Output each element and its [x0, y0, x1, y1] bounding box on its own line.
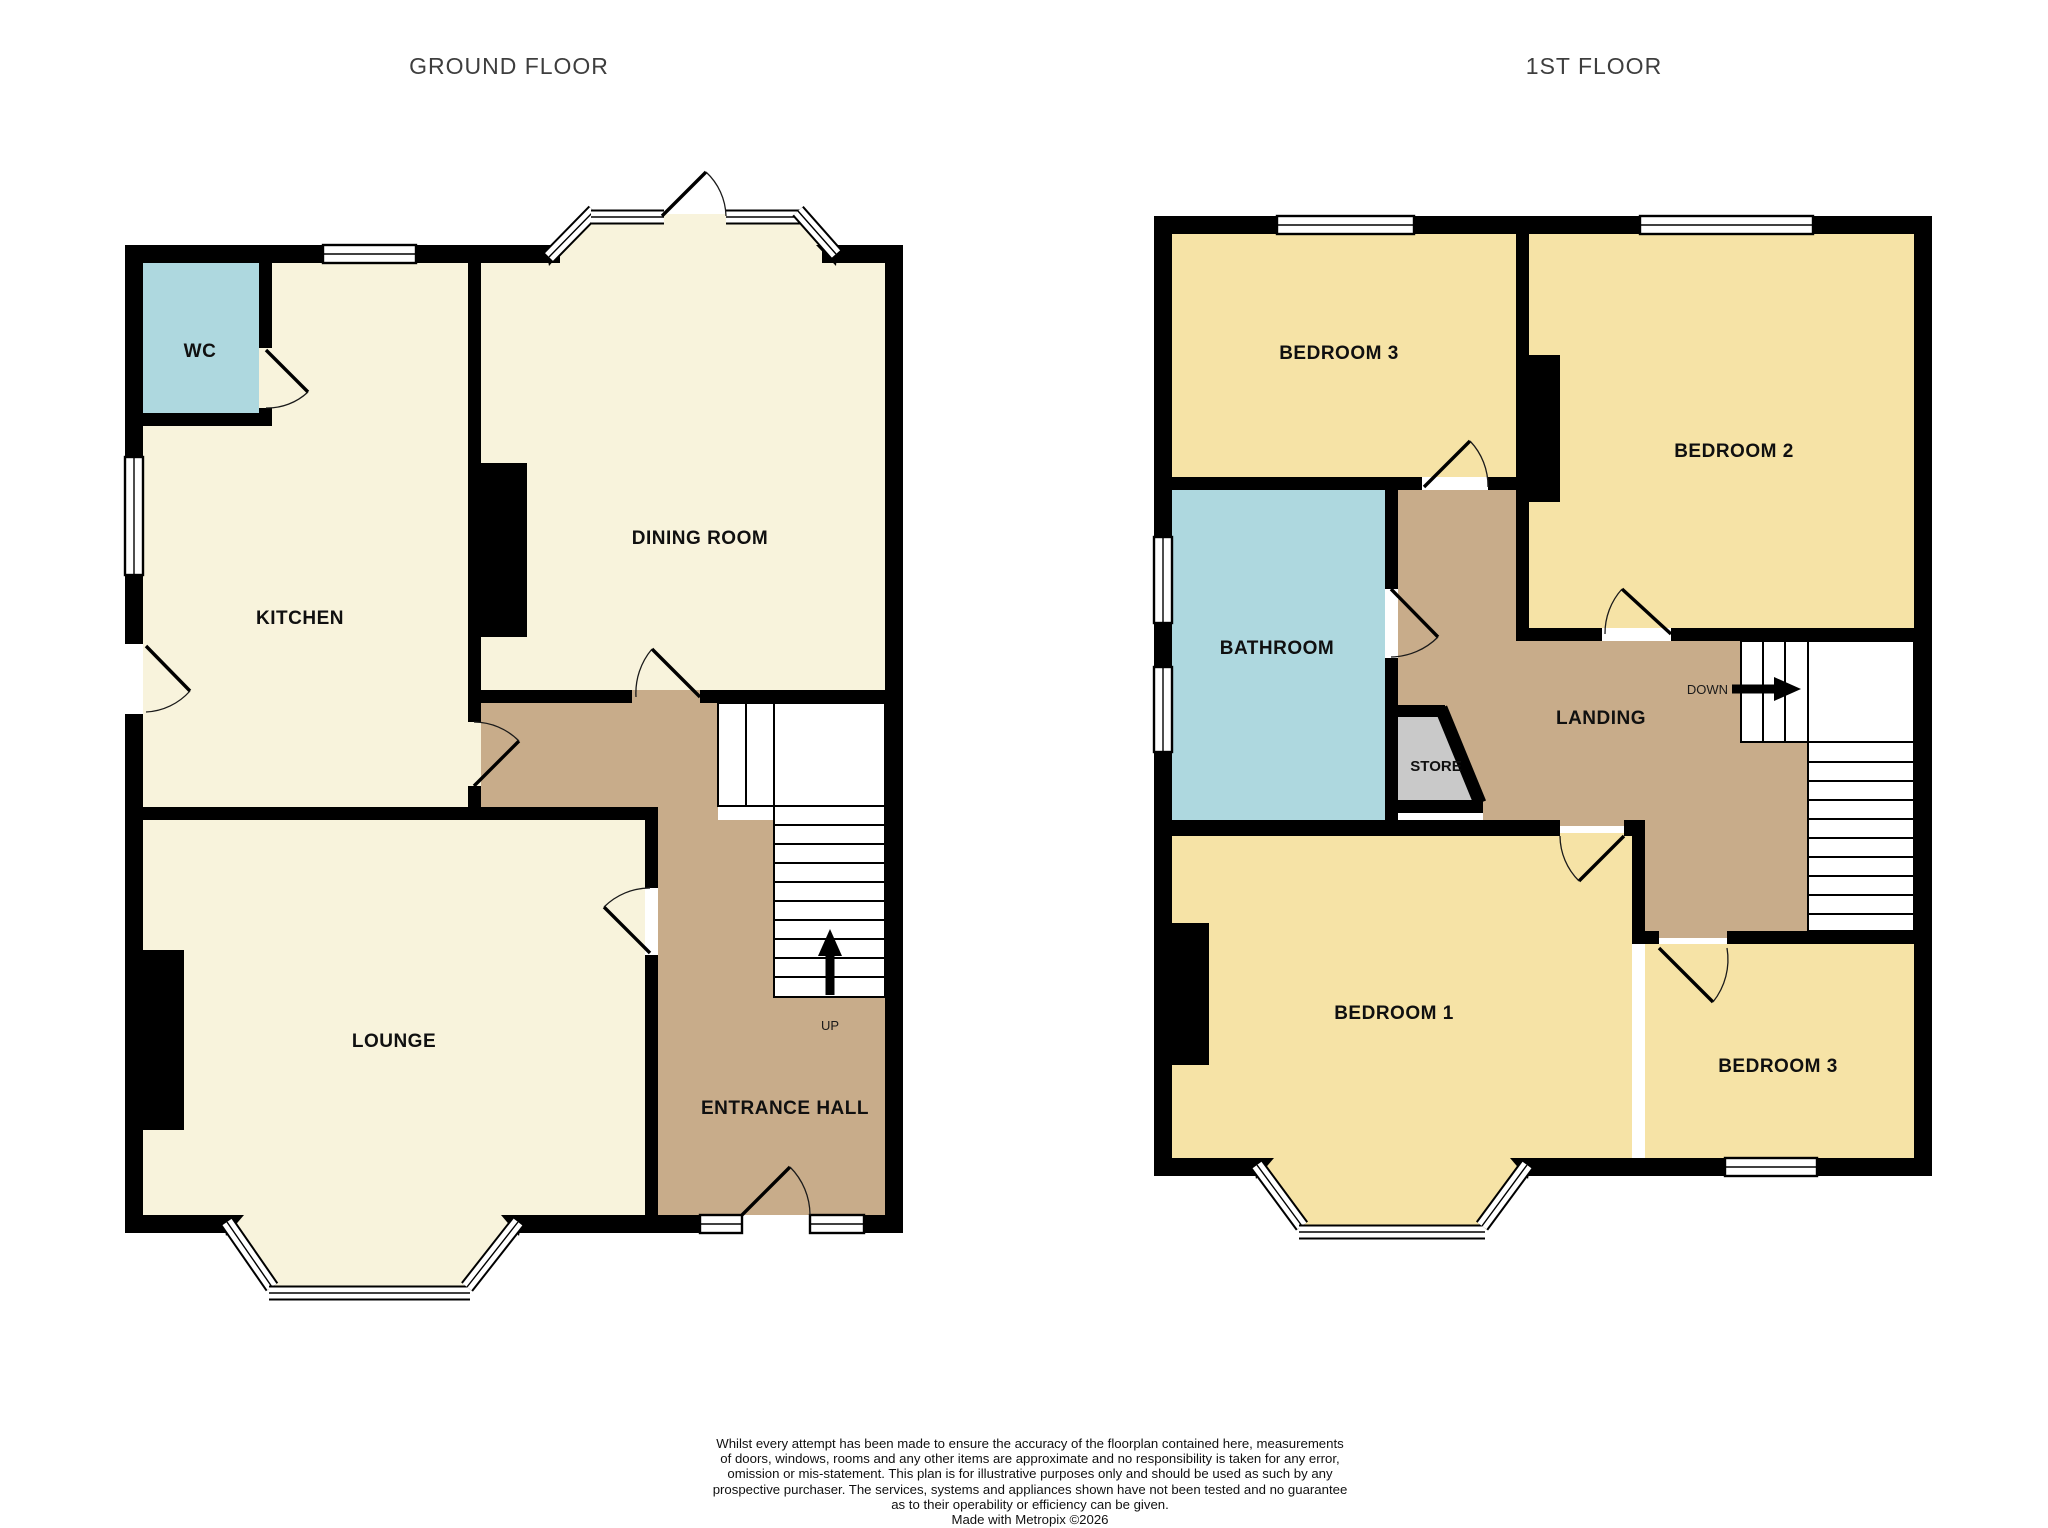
bathroom-window-lower: [1154, 667, 1172, 752]
ground-floor-plan: WC KITCHEN DINING ROOM LOUNGE ENTRANCE H…: [125, 172, 903, 1293]
stairwell-void: [1808, 641, 1914, 742]
kitchen-side-window: [125, 457, 143, 575]
first-floor-title: 1ST FLOOR: [1526, 53, 1662, 79]
dining-room-label: DINING ROOM: [632, 528, 768, 549]
hall-corridor-floor: [481, 690, 718, 820]
bathroom-label: BATHROOM: [1220, 638, 1334, 659]
landing-label: LANDING: [1556, 708, 1646, 729]
bedroom3-bottom-label: BEDROOM 3: [1718, 1056, 1838, 1077]
kitchen-top-window: [323, 245, 416, 263]
bedroom3-top-window: [1277, 216, 1414, 234]
made-with-metropix: Made with Metropix ©2026: [624, 1512, 1436, 1527]
front-door-side-window-right: [810, 1215, 864, 1233]
disclaimer-line: omission or mis-statement. This plan is …: [624, 1466, 1436, 1481]
down-label: DOWN: [1687, 682, 1728, 697]
disclaimer-line: prospective purchaser. The services, sys…: [624, 1482, 1436, 1497]
lounge-chimney-breast: [143, 950, 184, 1130]
bedroom1-label: BEDROOM 1: [1334, 1003, 1454, 1024]
floorplan-page: WC KITCHEN DINING ROOM LOUNGE ENTRANCE H…: [0, 0, 2048, 1528]
disclaimer-footer: Whilst every attempt has been made to en…: [624, 1436, 1436, 1527]
entrance-hall-label: ENTRANCE HALL: [701, 1098, 869, 1119]
disclaimer-line: of doors, windows, rooms and any other i…: [624, 1451, 1436, 1466]
floorplan-canvas: WC KITCHEN DINING ROOM LOUNGE ENTRANCE H…: [0, 0, 2048, 1528]
bedroom1-chimney-breast: [1172, 923, 1209, 1065]
first-floor-plan: BEDROOM 3 BEDROOM 2 BATHROOM STORE LANDI…: [1154, 216, 1932, 1232]
bathroom-window-upper: [1154, 537, 1172, 623]
bedroom2-label: BEDROOM 2: [1674, 441, 1794, 462]
up-label: UP: [821, 1018, 839, 1033]
lounge-floor: [143, 820, 645, 1215]
bedroom3-top-label: BEDROOM 3: [1279, 343, 1399, 364]
store-label: STORE: [1410, 758, 1461, 775]
disclaimer-line: Whilst every attempt has been made to en…: [624, 1436, 1436, 1451]
dining-room-floor: [481, 263, 885, 703]
bedroom2-floor: [1529, 234, 1914, 628]
kitchen-label: KITCHEN: [256, 608, 344, 629]
dining-chimney-breast: [481, 463, 527, 637]
dining-bay-door: [662, 172, 726, 216]
bedroom2-chimney-breast: [1529, 355, 1560, 502]
wc-label: WC: [184, 341, 217, 362]
store-bottom-wall: [1398, 800, 1483, 813]
bedroom2-top-window: [1640, 216, 1813, 234]
entrance-hall-floor: [658, 820, 774, 1215]
disclaimer-line: as to their operability or efficiency ca…: [624, 1497, 1436, 1512]
stair-half-landing: [718, 703, 885, 806]
bedroom1-floor: [1172, 833, 1632, 1158]
lounge-label: LOUNGE: [352, 1031, 436, 1052]
wc-floor: [143, 263, 259, 413]
ground-floor-title: GROUND FLOOR: [409, 53, 609, 79]
bedroom3-bottom-window: [1725, 1158, 1817, 1176]
front-door-side-window-left: [700, 1215, 742, 1233]
stair-run: [1808, 742, 1914, 931]
